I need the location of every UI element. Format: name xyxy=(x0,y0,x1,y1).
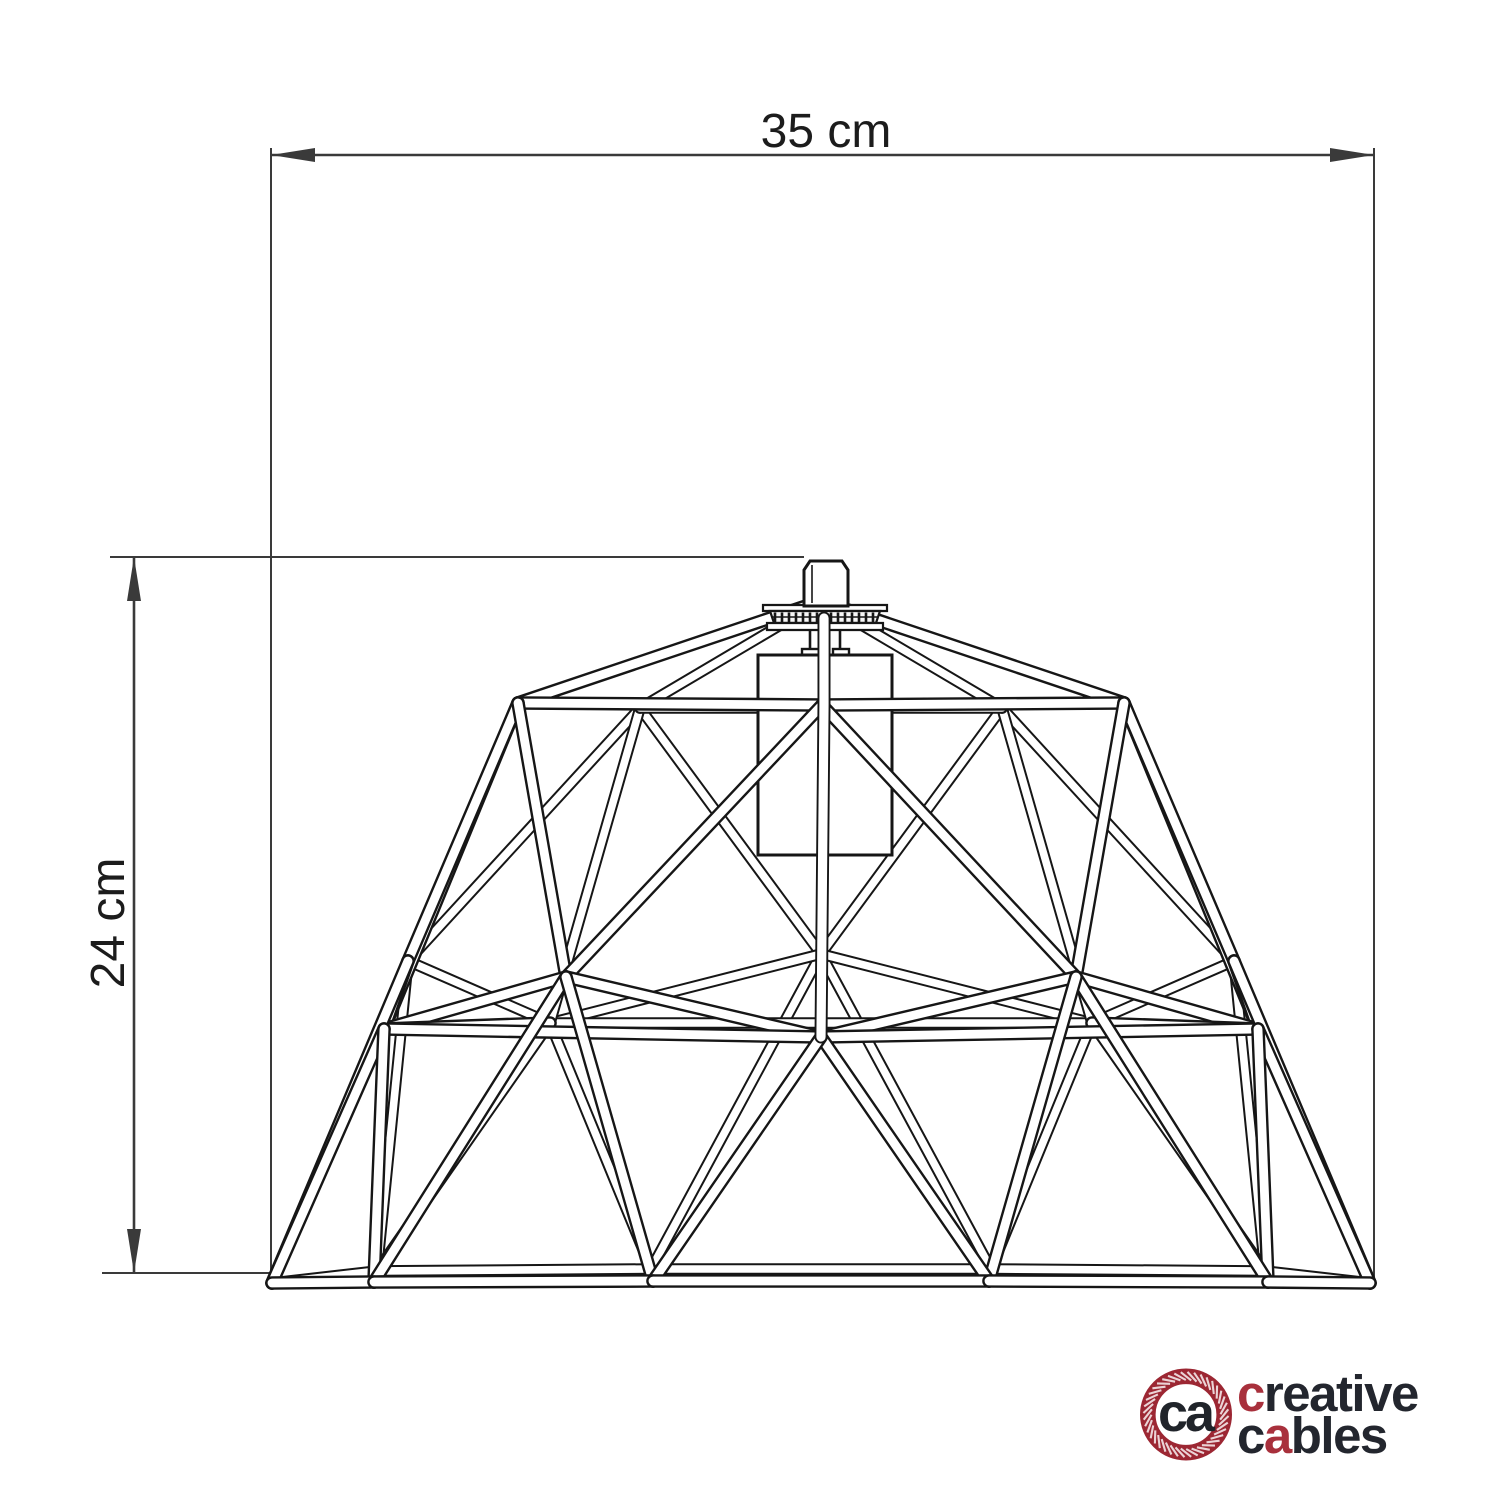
svg-text:cables: cables xyxy=(1237,1407,1387,1464)
svg-text:ca: ca xyxy=(1158,1383,1216,1443)
svg-text:24 cm: 24 cm xyxy=(82,858,135,989)
svg-text:35 cm: 35 cm xyxy=(761,105,892,158)
